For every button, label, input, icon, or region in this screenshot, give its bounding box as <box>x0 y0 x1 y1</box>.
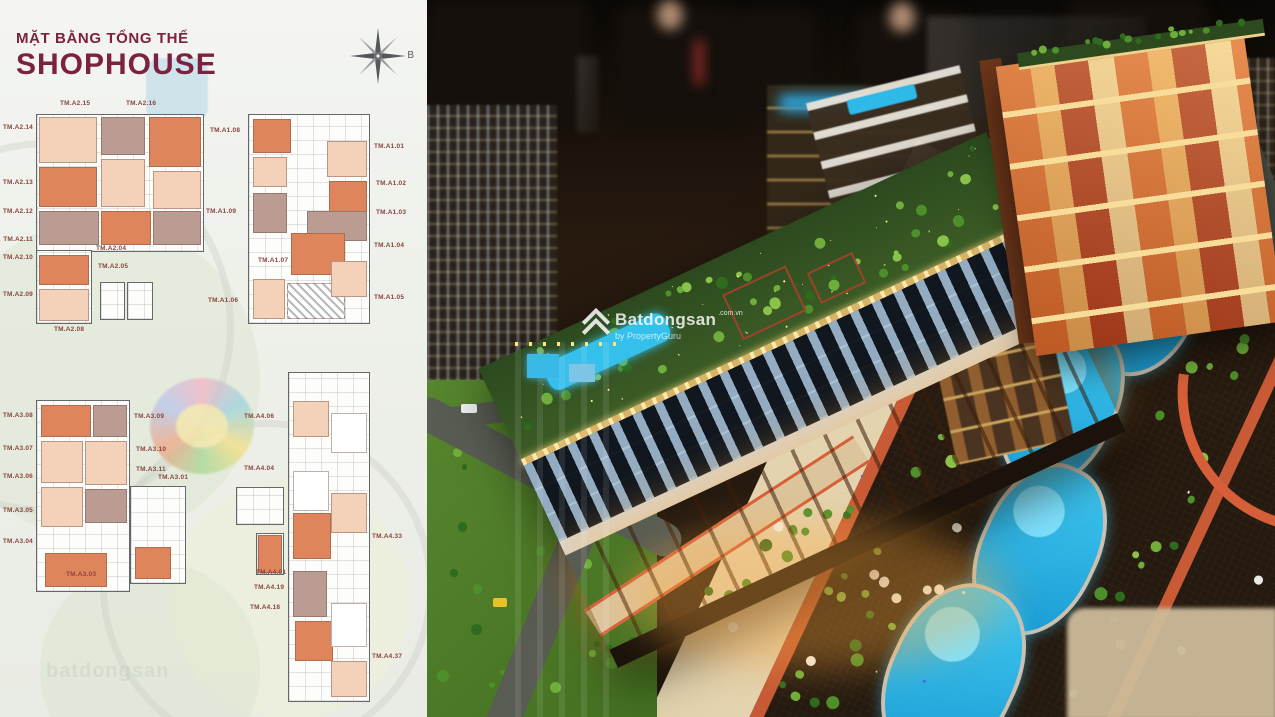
plan-unit <box>41 487 83 527</box>
unit-label: TM.A2.14 <box>0 124 33 131</box>
plan-unit <box>135 547 171 579</box>
plan-unit <box>331 493 367 533</box>
plan-unit <box>153 211 201 245</box>
blurred-person-head <box>657 0 683 30</box>
blue-screen <box>527 354 559 378</box>
unit-label: TM.A4.33 <box>372 533 402 540</box>
compass-north-label: B <box>407 50 414 61</box>
watermark: Batdongsan.com.vn by PropertyGuru <box>583 310 743 341</box>
floorplan-block-a4 <box>288 372 370 702</box>
unit-label: TM.A3.01 <box>158 474 188 481</box>
plan-unit <box>253 279 285 319</box>
plan-unit <box>253 157 287 187</box>
plan-unit <box>41 441 83 483</box>
unit-label: TM.A3.08 <box>0 412 33 419</box>
unit-label: TM.A1.04 <box>374 242 404 249</box>
plan-unit <box>39 211 99 245</box>
model-photo: Batdongsan.com.vn by PropertyGuru <box>427 0 1275 717</box>
unit-label: TM.A1.08 <box>210 127 240 134</box>
plan-unit <box>295 621 333 661</box>
central-park <box>150 378 254 474</box>
page-title: MẶT BẰNG TỔNG THỂ SHOPHOUSE <box>16 30 217 82</box>
unit-label: TM.A2.04 <box>96 245 126 252</box>
plan-unit <box>41 405 91 437</box>
plan-unit <box>329 181 367 213</box>
corner-building <box>1067 608 1275 717</box>
floorplan-block-a3-annex <box>130 486 186 584</box>
plan-unit <box>93 405 127 437</box>
batdongsan-logo-icon <box>583 310 609 338</box>
park-structure <box>100 282 125 320</box>
page-title-line2: SHOPHOUSE <box>16 48 217 82</box>
plan-unit <box>331 603 367 647</box>
white-car <box>461 404 477 413</box>
plan-unit <box>293 571 327 617</box>
watermark-suffix: .com.vn <box>718 310 743 317</box>
floorplan-block-a2-main <box>36 114 204 252</box>
unit-label: TM.A2.05 <box>98 263 128 270</box>
park-structure <box>127 282 153 320</box>
plan-unit <box>327 141 367 177</box>
unit-label: TM.A4.06 <box>244 413 274 420</box>
page-title-line1: MẶT BẰNG TỔNG THỂ <box>16 30 217 47</box>
faint-watermark: batdongsan <box>46 660 169 683</box>
unit-label: TM.A1.03 <box>376 209 406 216</box>
plan-unit <box>39 117 97 163</box>
right-glowing-building <box>996 32 1275 356</box>
blue-screen <box>569 364 595 382</box>
floorplan-block-a4-annex <box>236 487 284 525</box>
unit-label: TM.A2.16 <box>126 100 156 107</box>
plan-unit <box>331 413 367 453</box>
unit-label: TM.A1.09 <box>206 208 236 215</box>
yellow-car <box>493 598 507 607</box>
plan-unit <box>45 553 107 587</box>
masterplan-panel: MẶT BẰNG TỔNG THỂ SHOPHOUSE <box>0 0 427 717</box>
unit-label: TM.A2.12 <box>0 208 33 215</box>
plan-unit <box>258 535 282 573</box>
unit-label: TM.A3.10 <box>136 446 166 453</box>
glass-reflection <box>577 56 599 132</box>
unit-label: TM.A4.04 <box>244 465 274 472</box>
unit-label: TM.A3.06 <box>0 473 33 480</box>
unit-label: TM.A2.15 <box>60 100 90 107</box>
unit-label: TM.A2.10 <box>0 254 33 261</box>
red-tie <box>695 40 703 84</box>
compass-rose <box>350 28 406 84</box>
unit-label: TM.A1.05 <box>374 294 404 301</box>
plan-unit <box>101 211 151 245</box>
plan-unit <box>85 489 127 523</box>
storefront-ground-glow <box>627 520 1007 670</box>
unit-label: TM.A1.01 <box>374 143 404 150</box>
plan-unit <box>293 401 329 437</box>
plan-unit <box>39 167 97 207</box>
floorplan-block-a2-ext <box>36 250 92 324</box>
screenshot-root: MẶT BẰNG TỔNG THỂ SHOPHOUSE <box>0 0 1275 717</box>
unit-label: TM.A3.05 <box>0 507 33 514</box>
unit-label: TM.A4.37 <box>372 653 402 660</box>
watermark-brand: Batdongsan <box>615 310 716 329</box>
plan-unit <box>293 513 331 559</box>
unit-label: TM.A2.08 <box>54 326 84 333</box>
unit-label: TM.A3.09 <box>134 413 164 420</box>
unit-label: TM.A1.02 <box>376 180 406 187</box>
endwall-top-lights <box>515 342 621 346</box>
watermark-text: Batdongsan.com.vn by PropertyGuru <box>615 310 743 341</box>
plan-unit <box>149 117 201 167</box>
plan-unit <box>101 159 145 207</box>
unit-label: TM.A4.19 <box>254 584 284 591</box>
plan-unit <box>39 289 89 321</box>
floorplan-block-a3 <box>36 400 130 592</box>
unit-label: TM.A2.11 <box>0 236 33 243</box>
unit-label: TM.A3.07 <box>0 445 33 452</box>
unit-label: TM.A3.11 <box>136 466 166 473</box>
floorplan-block-a1 <box>248 114 370 324</box>
blurred-person-head <box>889 2 915 32</box>
plan-unit <box>253 119 291 153</box>
plan-unit <box>39 255 89 285</box>
unit-label: TM.A4.01 <box>256 569 286 576</box>
plan-unit <box>293 471 329 511</box>
unit-label: TM.A2.09 <box>0 291 33 298</box>
unit-label: TM.A1.07 <box>258 257 288 264</box>
unit-label: TM.A3.04 <box>0 538 33 545</box>
watermark-byline: by PropertyGuru <box>615 331 743 341</box>
plan-unit <box>101 117 145 155</box>
building-end-wall <box>515 342 621 717</box>
unit-label: TM.A3.03 <box>66 571 96 578</box>
compass-icon: B <box>350 28 416 86</box>
plan-unit <box>153 171 201 209</box>
unit-label: TM.A2.13 <box>0 179 33 186</box>
plan-unit <box>253 193 287 233</box>
unit-label: TM.A1.06 <box>208 297 238 304</box>
plan-unit <box>331 661 367 697</box>
plan-unit <box>331 261 367 297</box>
unit-label: TM.A4.18 <box>250 604 280 611</box>
plan-unit <box>85 441 127 485</box>
